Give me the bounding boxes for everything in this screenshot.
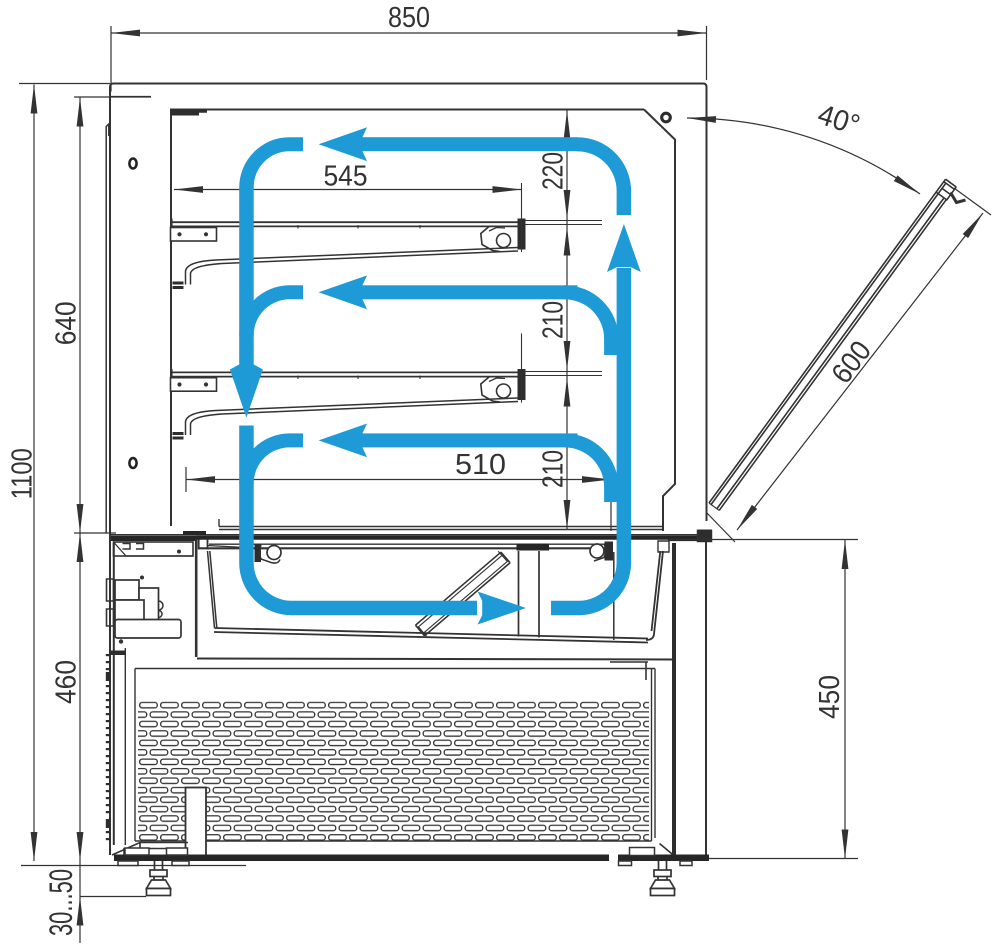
svg-text:40°: 40°	[814, 99, 864, 142]
svg-text:210: 210	[538, 301, 570, 339]
svg-text:210: 210	[538, 450, 570, 488]
svg-text:450: 450	[814, 675, 846, 719]
svg-text:600: 600	[826, 335, 878, 389]
svg-text:220: 220	[538, 152, 570, 190]
svg-text:30...50: 30...50	[43, 869, 79, 936]
svg-text:510: 510	[455, 449, 506, 481]
svg-text:460: 460	[51, 660, 83, 704]
svg-text:1100: 1100	[7, 448, 39, 499]
svg-text:640: 640	[51, 301, 83, 345]
svg-text:850: 850	[388, 2, 430, 34]
svg-text:545: 545	[324, 161, 368, 193]
